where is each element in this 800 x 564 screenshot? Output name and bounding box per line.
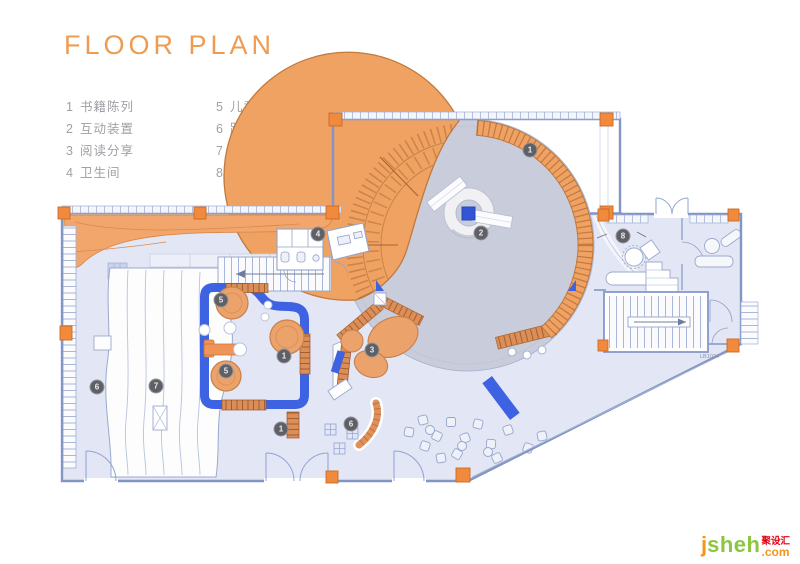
watermark: jsheh 聚设汇 .com (701, 532, 790, 558)
zone-marker: 5 (219, 364, 234, 379)
zone-marker: 6 (344, 417, 359, 432)
floor-plan-page: FLOOR PLAN 1书籍陈列 2互动装置 3阅读分享 4卫生间 5儿童阅读区… (0, 0, 800, 564)
zone-marker: 8 (616, 229, 631, 244)
zone-marker: 3 (365, 343, 380, 358)
zone-marker: 1 (277, 349, 292, 364)
left-wall-bookshelf (63, 226, 76, 468)
zone-marker: 5 (214, 293, 229, 308)
zone-marker: 7 (149, 379, 164, 394)
zone-marker: 2 (474, 226, 489, 241)
zone-marker: 1 (274, 422, 289, 437)
zone-marker: 6 (90, 380, 105, 395)
floor-plan-drawing: LB1024 (0, 0, 800, 564)
zone-marker: 1 (523, 143, 538, 158)
watermark-com: .com (761, 546, 789, 558)
zone-marker: 4 (311, 227, 326, 242)
room-label: LB1024 (700, 354, 719, 360)
